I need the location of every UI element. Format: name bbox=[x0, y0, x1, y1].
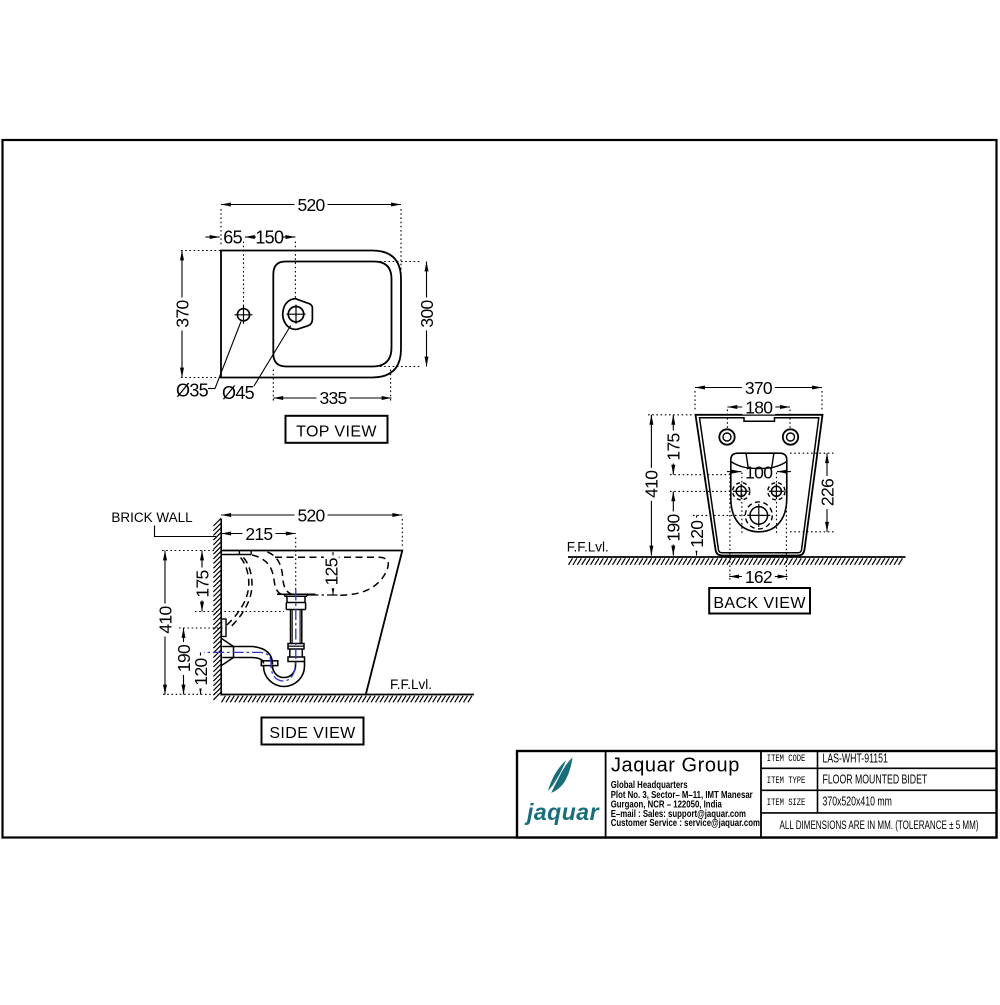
svg-text:410: 410 bbox=[642, 470, 662, 498]
svg-text:150: 150 bbox=[255, 227, 284, 247]
svg-text:ITEM SIZE: ITEM SIZE bbox=[767, 797, 806, 809]
svg-text:ITEM CODE: ITEM CODE bbox=[767, 753, 806, 765]
svg-text:226: 226 bbox=[817, 479, 837, 506]
svg-text:120: 120 bbox=[687, 520, 707, 548]
svg-text:ALL DIMENSIONS ARE IN MM. (TOL: ALL DIMENSIONS ARE IN MM. (TOLERANCE ± 5… bbox=[780, 820, 979, 833]
svg-text:175: 175 bbox=[192, 570, 212, 597]
svg-text:65: 65 bbox=[223, 227, 242, 247]
svg-text:190: 190 bbox=[664, 513, 684, 541]
svg-text:162: 162 bbox=[745, 567, 772, 587]
svg-text:125: 125 bbox=[322, 558, 342, 585]
svg-text:Ø35: Ø35 bbox=[176, 381, 209, 401]
svg-text:Customer Service : service@jaq: Customer Service : service@jaquar.com bbox=[611, 817, 760, 828]
svg-text:TOP VIEW: TOP VIEW bbox=[296, 423, 377, 440]
svg-text:370x520x410 mm: 370x520x410 mm bbox=[823, 795, 892, 809]
svg-text:F.F.Lvl.: F.F.Lvl. bbox=[390, 677, 432, 692]
svg-text:Ø45: Ø45 bbox=[222, 383, 255, 403]
svg-text:Jaquar Group: Jaquar Group bbox=[611, 755, 740, 777]
svg-text:ITEM TYPE: ITEM TYPE bbox=[767, 775, 806, 787]
svg-text:jaquar: jaquar bbox=[524, 799, 600, 825]
svg-text:215: 215 bbox=[245, 524, 272, 544]
svg-text:LAS-WHT-91151: LAS-WHT-91151 bbox=[823, 752, 888, 766]
svg-text:BACK VIEW: BACK VIEW bbox=[713, 595, 806, 612]
svg-text:520: 520 bbox=[297, 505, 325, 525]
svg-text:100: 100 bbox=[745, 462, 773, 482]
svg-text:SIDE VIEW: SIDE VIEW bbox=[269, 725, 356, 742]
svg-text:F.F.Lvl.: F.F.Lvl. bbox=[567, 540, 609, 555]
svg-text:520: 520 bbox=[297, 195, 325, 215]
svg-text:370: 370 bbox=[745, 378, 773, 398]
svg-text:410: 410 bbox=[155, 605, 175, 633]
svg-text:120: 120 bbox=[191, 657, 211, 685]
svg-text:175: 175 bbox=[664, 433, 684, 460]
svg-text:FLOOR MOUNTED BIDET: FLOOR MOUNTED BIDET bbox=[823, 773, 928, 787]
svg-text:370: 370 bbox=[172, 299, 192, 327]
svg-text:300: 300 bbox=[417, 299, 437, 327]
svg-text:180: 180 bbox=[745, 397, 773, 417]
svg-text:335: 335 bbox=[319, 388, 346, 408]
svg-text:BRICK WALL: BRICK WALL bbox=[111, 510, 193, 525]
